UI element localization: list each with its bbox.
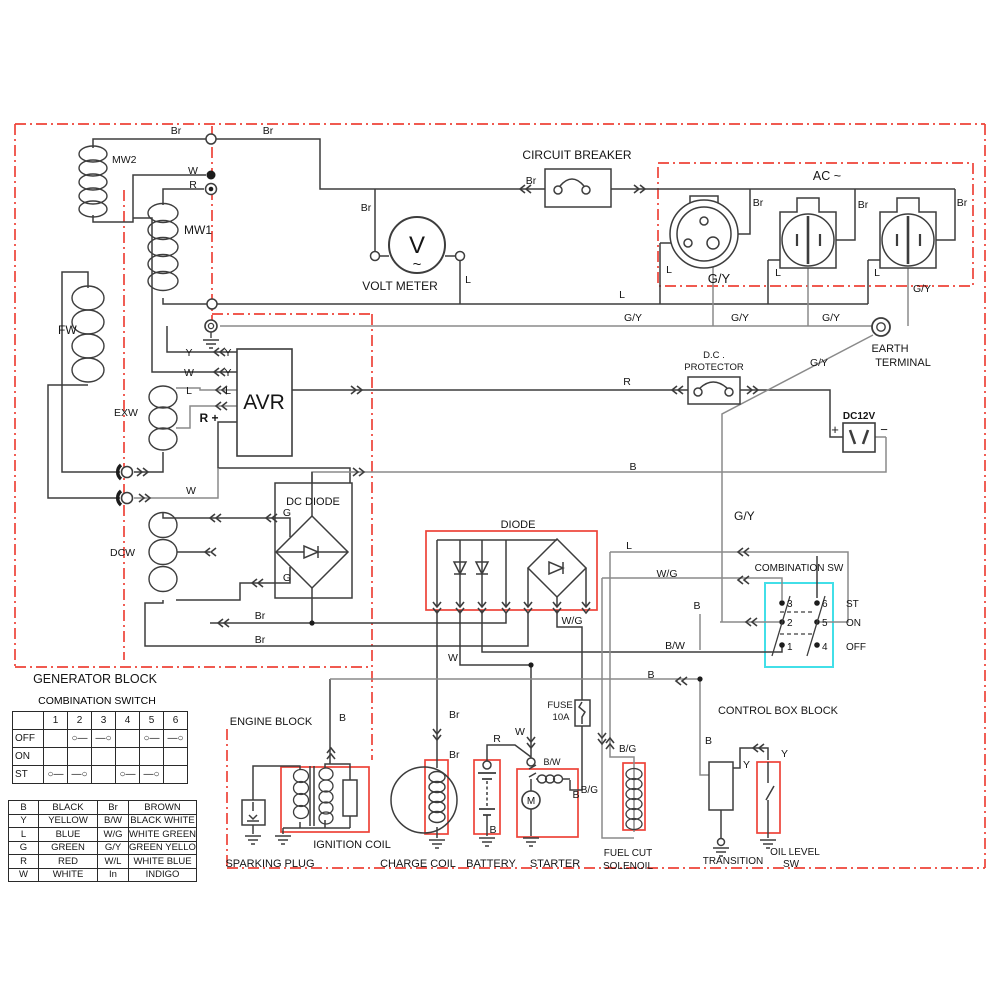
wire-label: L: [465, 274, 471, 286]
wire-label: Y: [185, 347, 192, 359]
wire-label: G/Y: [734, 509, 755, 523]
wire-label: L: [619, 289, 625, 301]
table-cell: W/L: [98, 855, 129, 869]
table-cell: B: [9, 801, 39, 815]
table-cell: [92, 748, 116, 766]
wire-label: W/G: [657, 568, 678, 580]
generator-block-title: GENERATOR BLOCK: [33, 672, 158, 686]
table-cell: GREEN: [39, 841, 98, 855]
table-cell: Br: [98, 801, 129, 815]
table-cell: W: [9, 868, 39, 882]
table-cell: [68, 748, 92, 766]
table-cell: ST: [13, 766, 44, 784]
table-cell: BLACK: [39, 801, 98, 815]
oil-level-sw-label: SW: [783, 859, 800, 870]
contact-number: 6: [822, 599, 828, 610]
table-cell: ○—: [44, 766, 68, 784]
sparking-plug-label: SPARKING PLUG: [225, 858, 314, 870]
dc-protector-label: PROTECTOR: [684, 362, 744, 373]
table-cell: 3: [92, 712, 116, 730]
table-cell: 4: [116, 712, 140, 730]
table-cell: [116, 730, 140, 748]
junction-dots: [309, 620, 702, 681]
table-cell: ON: [13, 748, 44, 766]
table-cell: Y: [9, 814, 39, 828]
table-cell: OFF: [13, 730, 44, 748]
diode-block: [437, 539, 586, 607]
contact-number: 4: [822, 642, 828, 653]
table-cell: RED: [39, 855, 98, 869]
ac-label: AC ~: [813, 169, 841, 183]
wire-label: G/Y: [731, 312, 749, 324]
wire-label: W: [186, 485, 196, 497]
diode-label: DIODE: [501, 519, 536, 531]
exw-label: EXW: [114, 407, 138, 419]
table-cell: [140, 748, 164, 766]
fw-label: FW: [58, 323, 77, 337]
contact-number: 2: [787, 618, 793, 629]
engine-block-title: ENGINE BLOCK: [230, 716, 313, 728]
ac-outlet-duplex-2: [880, 198, 936, 268]
dcw-label: DCW: [110, 547, 135, 559]
oil-level-sw-label: OIL LEVEL: [770, 847, 820, 858]
position-label-on: ON: [846, 618, 861, 629]
table-cell: —○: [164, 730, 188, 748]
table-cell: [164, 766, 188, 784]
wire-label: Y: [224, 347, 231, 359]
wire-label: G/Y: [708, 271, 731, 286]
wire-label: W: [188, 165, 198, 177]
table-cell: —○: [140, 766, 164, 784]
ignition-coil: [294, 768, 358, 824]
table-cell: ○—: [140, 730, 164, 748]
table-cell: ○—: [116, 766, 140, 784]
wire-label: G: [283, 507, 291, 519]
ac-outlet-duplex-1: [780, 198, 836, 268]
wire-label: B/W: [665, 640, 685, 652]
wire-label: Y: [781, 748, 788, 760]
contact-number: 3: [787, 599, 793, 610]
wire-label: G/Y: [822, 312, 840, 324]
fw-coil: [72, 286, 104, 382]
battery: [478, 761, 496, 815]
volt-meter-label: VOLT METER: [362, 279, 438, 293]
wire-label: Y: [224, 367, 231, 379]
table-cell: L: [9, 828, 39, 842]
table-cell: B/W: [98, 814, 129, 828]
wire-label: Br: [449, 749, 460, 761]
wire-label: G/Y: [624, 312, 642, 324]
table-cell: G: [9, 841, 39, 855]
ignition-coil-label: IGNITION COIL: [313, 839, 391, 851]
circuit-breaker: [545, 169, 611, 207]
table-cell: [116, 748, 140, 766]
exw-coil: [149, 386, 177, 450]
table-cell: BLUE: [39, 828, 98, 842]
table-cell: [44, 730, 68, 748]
table-cell: [13, 712, 44, 730]
table-cell: 2: [68, 712, 92, 730]
charge-coil-label: CHARGE COIL: [380, 858, 456, 870]
wire-label: W/G: [562, 615, 583, 627]
dc-protector-label: D.C .: [703, 350, 725, 361]
dc12v-socket: [843, 423, 875, 452]
wire-label: Br: [255, 634, 266, 646]
wire-label: Br: [263, 125, 274, 137]
wire-label: B/G: [581, 785, 598, 796]
wire-label: B: [572, 789, 579, 801]
wire-label: B: [647, 669, 654, 681]
wire-label: Br: [449, 709, 460, 721]
color-code-table: BBLACKBrBROWNYYELLOWB/WBLACK WHITELBLUEW…: [8, 800, 197, 882]
wire-label: L: [186, 385, 192, 397]
table-cell: WHITE GREEN: [129, 828, 197, 842]
fuse-label: FUSE: [547, 700, 572, 711]
wiring-diagram: Br Br MW2 W R MW1 Br VOLT METER V ~ L CI…: [0, 0, 994, 994]
wire-label: Br: [858, 199, 869, 211]
fuel-cut-label: FUEL CUT: [604, 848, 653, 859]
polarity-minus: −: [880, 422, 888, 437]
diode-box-outline: [426, 531, 597, 610]
table-cell: R: [9, 855, 39, 869]
wire-label: B: [629, 461, 636, 473]
position-label-st: ST: [846, 599, 859, 610]
fuse: [575, 700, 590, 726]
table-cell: —○: [92, 730, 116, 748]
wire-label: R: [189, 179, 197, 191]
combination-switch-table-title: COMBINATION SWITCH: [12, 695, 182, 707]
circuit-breaker-label: CIRCUIT BREAKER: [522, 148, 631, 162]
table-cell: 6: [164, 712, 188, 730]
battery-label: BATTERY: [466, 858, 516, 870]
wire-label: B: [693, 600, 700, 612]
dc-diode-label: DC DIODE: [286, 496, 340, 508]
wire-label: L: [775, 267, 781, 279]
wire-label: Br: [255, 610, 266, 622]
polarity-plus: +: [831, 422, 839, 437]
control-box-block-title: CONTROL BOX BLOCK: [718, 705, 839, 717]
table-cell: W/G: [98, 828, 129, 842]
volt-wave: ~: [413, 256, 422, 273]
mw1-label: MW1: [184, 223, 212, 237]
wire-label: B/W: [544, 757, 562, 767]
avr-label: AVR: [243, 391, 285, 414]
wire-label: L: [666, 264, 672, 276]
wire-label: L: [626, 540, 632, 552]
table-cell: WHITE BLUE: [129, 855, 197, 869]
earth-terminal: [872, 318, 890, 336]
table-cell: 1: [44, 712, 68, 730]
wire-label: W: [184, 367, 194, 379]
table-cell: 5: [140, 712, 164, 730]
combination-sw-label: COMBINATION SW: [755, 563, 844, 574]
table-cell: —○: [68, 766, 92, 784]
table-cell: [44, 748, 68, 766]
ac-outlet-twistlock: [670, 196, 738, 268]
table-cell: WHITE: [39, 868, 98, 882]
wire-label: Br: [753, 197, 764, 209]
earth-terminal-label: EARTH: [871, 343, 908, 355]
wire-label: G/Y: [913, 283, 931, 295]
wire-label: B: [339, 712, 346, 724]
fuse-label: 10A: [553, 712, 571, 723]
wire-label: Br: [526, 175, 537, 187]
earth-terminal-label: TERMINAL: [875, 357, 931, 369]
dc-protector: [688, 377, 740, 404]
position-label-off: OFF: [846, 642, 866, 653]
wire-label: G/Y: [810, 357, 828, 369]
combination-switch-table: 123456OFF○——○○——○ONST○——○○——○: [12, 711, 188, 784]
wire-label: Br: [171, 125, 182, 137]
contact-number: 5: [822, 618, 828, 629]
wire-label: Br: [361, 202, 372, 214]
mw2-label: MW2: [112, 154, 137, 166]
table-cell: [92, 766, 116, 784]
wire-label: G: [283, 572, 291, 584]
wire-label: W: [448, 652, 458, 664]
wire-label: B/G: [619, 744, 636, 755]
table-cell: In: [98, 868, 129, 882]
wire-label: R +: [199, 411, 218, 425]
wire-label: Br: [957, 197, 968, 209]
table-cell: GREEN YELLOW: [129, 841, 197, 855]
wire-label: R: [493, 733, 501, 745]
combination-switch: [772, 596, 825, 656]
table-cell: INDIGO: [129, 868, 197, 882]
wire-label: B: [705, 735, 712, 747]
table-cell: BLACK WHITE: [129, 814, 197, 828]
wire-label: L: [225, 385, 231, 397]
table-cell: YELLOW: [39, 814, 98, 828]
wire-label: Y: [743, 759, 750, 771]
table-cell: G/Y: [98, 841, 129, 855]
wire-label: W: [515, 726, 525, 738]
sparking-plug: [242, 800, 265, 825]
wire-label: R: [623, 376, 631, 388]
wire-label: L: [874, 267, 880, 279]
table-cell: BROWN: [129, 801, 197, 815]
starter-label: STARTER: [530, 858, 580, 870]
fuel-cut-label: SOLENOIL: [603, 861, 653, 872]
table-cell: [164, 748, 188, 766]
charge-coil: [391, 767, 457, 833]
dc12v-label: DC12V: [843, 411, 876, 422]
dcw-coil: [149, 513, 177, 592]
contact-number: 1: [787, 642, 793, 653]
table-cell: ○—: [68, 730, 92, 748]
transition-label: TRANSITION: [703, 856, 764, 867]
volt-symbol: V: [409, 232, 425, 259]
wire-label: B: [489, 824, 496, 836]
motor-m-label: M: [527, 796, 535, 807]
mw2-coil: [79, 146, 107, 217]
